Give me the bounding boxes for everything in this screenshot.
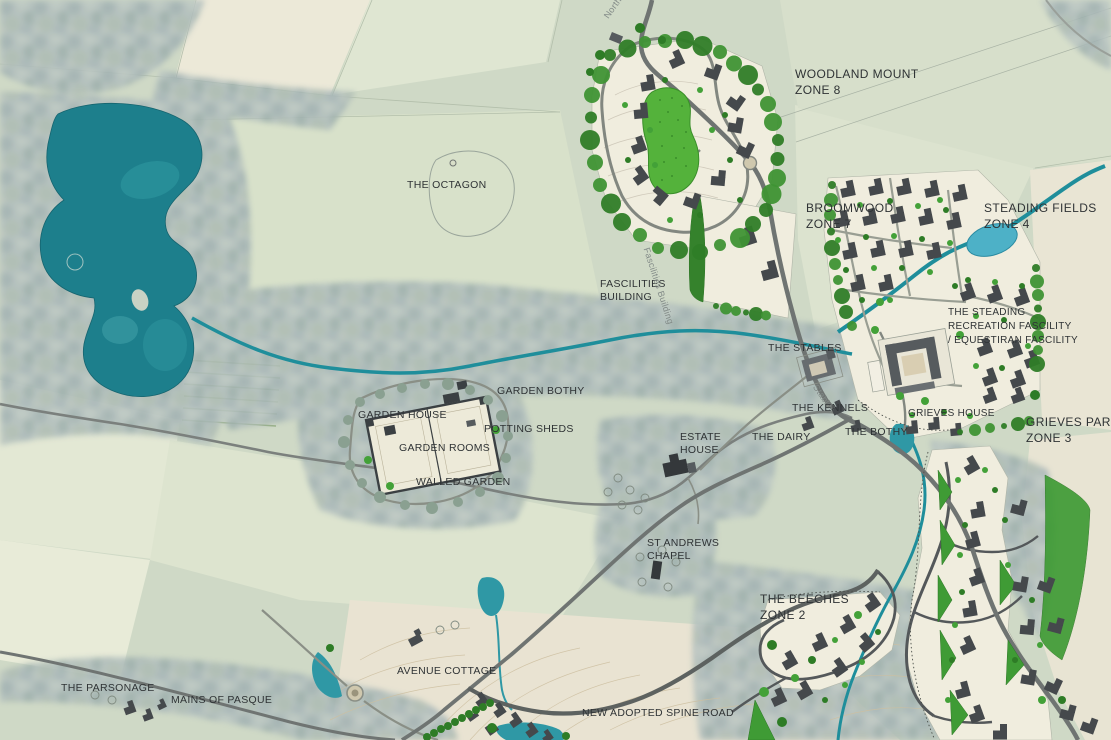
tree-icon <box>992 487 998 493</box>
tree-belt-icon <box>619 40 637 58</box>
tree-icon <box>400 500 410 510</box>
map-canvas <box>0 0 1111 740</box>
tree-belt-icon <box>759 203 773 217</box>
tree-belt-icon <box>713 303 719 309</box>
tree-belt-icon <box>762 184 782 204</box>
tree-icon <box>949 657 955 663</box>
tree-icon <box>1019 283 1025 289</box>
tree-icon <box>896 392 904 400</box>
label-the-stables: THE STABLES <box>768 342 842 355</box>
tree-icon <box>658 36 666 44</box>
tree-icon <box>667 217 673 223</box>
label-avenue-cottage: AVENUE COTTAGE <box>397 665 497 678</box>
tree-icon <box>859 297 865 303</box>
tree-icon <box>982 467 988 473</box>
tree-icon <box>697 87 703 93</box>
octagon-icon <box>450 160 456 166</box>
tree-icon <box>921 397 929 405</box>
label-the-beeches-zone2: THE BEECHES ZONE 2 <box>760 591 849 623</box>
tree-icon <box>791 674 799 682</box>
tree-icon <box>586 68 594 76</box>
tree-icon <box>662 77 668 83</box>
tree-belt-icon <box>585 112 597 124</box>
label-new-adopted-spine-road: NEW ADOPTED SPINE ROAD <box>582 707 734 720</box>
label-garden-bothy: GARDEN BOTHY <box>497 385 585 398</box>
tree-belt-icon <box>670 241 688 259</box>
tree-belt-icon <box>1030 275 1044 289</box>
tree-belt-icon <box>731 306 741 316</box>
tree-belt-icon <box>761 311 771 321</box>
tree-icon <box>345 460 355 470</box>
tree-icon <box>426 502 438 514</box>
tree-belt-icon <box>584 87 600 103</box>
tree-icon <box>1029 597 1035 603</box>
label-woodland-mount-zone8: WOODLAND MOUNT ZONE 8 <box>795 66 919 98</box>
tree-icon <box>374 491 386 503</box>
label-walled-garden: WALLED GARDEN <box>416 476 511 489</box>
tree-icon <box>479 703 487 711</box>
tree-icon <box>952 283 958 289</box>
tree-icon <box>835 237 841 243</box>
tree-icon <box>859 659 865 665</box>
tree-belt-icon <box>969 424 981 436</box>
label-the-dairy: THE DAIRY <box>752 431 811 444</box>
tree-belt-icon <box>714 239 726 251</box>
tree-icon <box>326 644 334 652</box>
tree-belt-icon <box>1001 423 1007 429</box>
tree-icon <box>871 326 879 334</box>
label-grieves-house: GRIEVES HOUSE <box>908 407 995 420</box>
label-broomwood-zone7: BROOMWOOD ZONE 7 <box>806 200 894 232</box>
tree-icon <box>625 157 631 163</box>
tree-icon <box>937 197 943 203</box>
tree-belt-icon <box>601 194 621 214</box>
tree-icon <box>767 640 777 650</box>
tree-belt-icon <box>730 228 750 248</box>
tree-belt-icon <box>847 321 857 331</box>
label-steading-fields-zone4: STEADING FIELDS ZONE 4 <box>984 200 1097 232</box>
tree-icon <box>1038 696 1046 704</box>
tree-icon <box>437 725 445 733</box>
tree-icon <box>486 699 494 707</box>
tree-belt-icon <box>1032 264 1040 272</box>
tree-belt-icon <box>726 56 742 72</box>
tree-icon <box>727 157 733 163</box>
tree-icon <box>955 477 961 483</box>
tree-icon <box>375 389 385 399</box>
tree-icon <box>697 212 703 218</box>
tree-icon <box>465 710 473 718</box>
label-mains-of-pasque: MAINS OF PASQUE <box>171 694 272 707</box>
tree-icon <box>338 436 350 448</box>
tree-icon <box>871 265 877 271</box>
tree-belt-icon <box>957 429 963 435</box>
tree-icon <box>822 697 828 703</box>
tree-icon <box>458 714 466 722</box>
label-garden-house: GARDEN HOUSE <box>358 409 447 422</box>
label-the-steading: THE STEADING RECREATION FASCILITY / EQUE… <box>948 306 1078 348</box>
tree-belt-icon <box>593 178 607 192</box>
tree-icon <box>999 365 1005 371</box>
tree-belt-icon <box>633 228 647 242</box>
tree-belt-icon <box>692 244 708 260</box>
tree-icon <box>722 112 728 118</box>
estate-masterplan-map: North Lodge WOODLAND MOUNT ZONE 8 THE OC… <box>0 0 1111 740</box>
tree-icon <box>952 622 958 628</box>
tree-belt-icon <box>1032 289 1044 301</box>
tree-belt-icon <box>833 275 843 285</box>
tree-belt-icon <box>604 49 616 61</box>
tree-icon <box>863 234 869 240</box>
label-the-bothy: THE BOTHY <box>845 426 908 439</box>
label-the-parsonage: THE PARSONAGE <box>61 682 155 695</box>
tree-icon <box>965 277 971 283</box>
tree-belt-icon <box>772 134 784 146</box>
tree-icon <box>957 552 963 558</box>
tree-belt-icon <box>587 155 603 171</box>
tree-icon <box>945 697 951 703</box>
tree-icon <box>759 687 769 697</box>
tree-belt-icon <box>580 130 600 150</box>
tree-icon <box>453 497 463 507</box>
tree-icon <box>843 267 849 273</box>
tree-icon <box>487 723 497 733</box>
tree-icon <box>737 197 743 203</box>
tree-belt-icon <box>713 45 727 59</box>
tree-belt-icon <box>839 305 853 319</box>
tree-icon <box>1037 642 1043 648</box>
tree-icon <box>842 682 848 688</box>
tree-icon <box>442 378 454 390</box>
tree-icon <box>562 732 570 740</box>
fascilities-plot <box>700 196 796 318</box>
tree-belt-icon <box>745 216 761 232</box>
tree-icon <box>808 656 816 664</box>
tree-icon <box>1002 517 1008 523</box>
tree-belt-icon <box>749 307 763 321</box>
tree-icon <box>876 298 884 306</box>
tree-belt-icon <box>985 423 995 433</box>
tree-belt-icon <box>738 65 758 85</box>
tree-icon <box>595 50 605 60</box>
tree-icon <box>777 717 787 727</box>
tree-icon <box>959 589 965 595</box>
tree-icon <box>887 297 893 303</box>
tree-icon <box>652 162 658 168</box>
tree-belt-icon <box>639 36 651 48</box>
tree-icon <box>357 478 367 488</box>
tree-icon <box>832 637 838 643</box>
tree-icon <box>962 522 968 528</box>
tree-icon <box>483 395 493 405</box>
label-estate-house: ESTATE HOUSE <box>680 431 721 457</box>
label-the-octagon: THE OCTAGON <box>407 179 487 192</box>
tree-belt-icon <box>752 84 764 96</box>
tree-belt-icon <box>720 303 732 315</box>
tree-belt-icon <box>592 66 610 84</box>
tree-belt-icon <box>768 169 786 187</box>
tree-icon <box>420 379 430 389</box>
tree-icon <box>875 629 881 635</box>
tree-icon <box>1058 696 1066 704</box>
tree-belt-icon <box>613 213 631 231</box>
tree-belt-icon <box>1029 356 1045 372</box>
tree-icon <box>343 415 353 425</box>
label-the-kennels: THE KENNELS <box>792 402 868 415</box>
tree-belt-icon <box>828 181 836 189</box>
tree-belt-icon <box>760 96 776 112</box>
tree-icon <box>1005 562 1011 568</box>
tree-belt-icon <box>771 152 785 166</box>
tree-icon <box>635 23 645 33</box>
tree-belt-icon <box>743 310 749 316</box>
tree-belt-icon <box>693 36 713 56</box>
tree-belt-icon <box>1011 417 1025 431</box>
tree-icon <box>973 363 979 369</box>
tree-icon <box>919 236 925 242</box>
label-garden-rooms: GARDEN ROOMS <box>399 442 490 455</box>
tree-icon <box>386 482 394 490</box>
tree-icon <box>622 102 628 108</box>
tree-icon <box>501 453 511 463</box>
tree-icon <box>444 722 452 730</box>
tree-icon <box>1030 390 1040 400</box>
tree-icon <box>927 269 933 275</box>
label-st-andrews-chapel: ST ANDREWS CHAPEL <box>647 537 719 563</box>
tree-belt-icon <box>834 288 850 304</box>
tree-icon <box>1012 657 1018 663</box>
tree-icon <box>647 127 653 133</box>
tree-belt-icon <box>676 31 694 49</box>
tree-icon <box>451 718 459 726</box>
tree-icon <box>915 203 921 209</box>
tree-icon <box>355 397 365 407</box>
tree-icon <box>465 385 475 395</box>
tree-icon <box>430 729 438 737</box>
tree-icon <box>472 706 480 714</box>
tree-icon <box>397 383 407 393</box>
tree-icon <box>899 265 905 271</box>
tree-icon <box>992 279 998 285</box>
tree-belt-icon <box>829 258 841 270</box>
tree-icon <box>891 233 897 239</box>
label-grieves-park-zone3: GRIEVES PARK ZONE 3 <box>1026 414 1111 446</box>
tree-icon <box>496 410 508 422</box>
tree-icon <box>709 127 715 133</box>
tree-belt-icon <box>764 113 782 131</box>
tree-icon <box>943 207 949 213</box>
tree-icon <box>947 240 953 246</box>
label-potting-sheds: POTTING SHEDS <box>484 423 574 436</box>
tree-icon <box>854 611 862 619</box>
tree-icon <box>364 456 372 464</box>
